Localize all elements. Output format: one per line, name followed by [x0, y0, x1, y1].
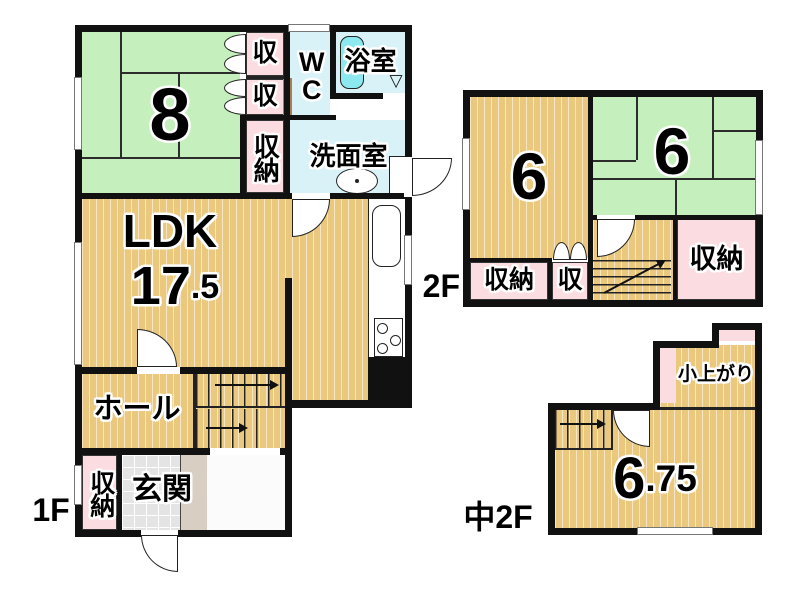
wall [653, 341, 719, 348]
room-675-label: 6.75 [580, 448, 730, 510]
stair-treads [555, 410, 611, 448]
wall [548, 528, 637, 535]
room-675-dec: .75 [645, 460, 696, 498]
floor-label-m2f: 中2F [458, 497, 538, 533]
room-675-int: 6 [613, 449, 645, 508]
koagari-step [719, 330, 755, 341]
floor-plan-canvas: ▽ [0, 0, 800, 601]
wall [653, 341, 660, 410]
koagari-step [660, 348, 676, 403]
wall [548, 403, 660, 410]
wall [548, 403, 555, 535]
wall [755, 323, 762, 535]
wall [712, 323, 762, 330]
floor-plan-m2f: 小上がり 6.75 中2F [0, 0, 800, 601]
koagari-edge-line [660, 407, 755, 410]
stairs-direction-arrow [560, 423, 604, 425]
koagari-label: 小上がり [678, 361, 754, 389]
window [637, 527, 713, 535]
